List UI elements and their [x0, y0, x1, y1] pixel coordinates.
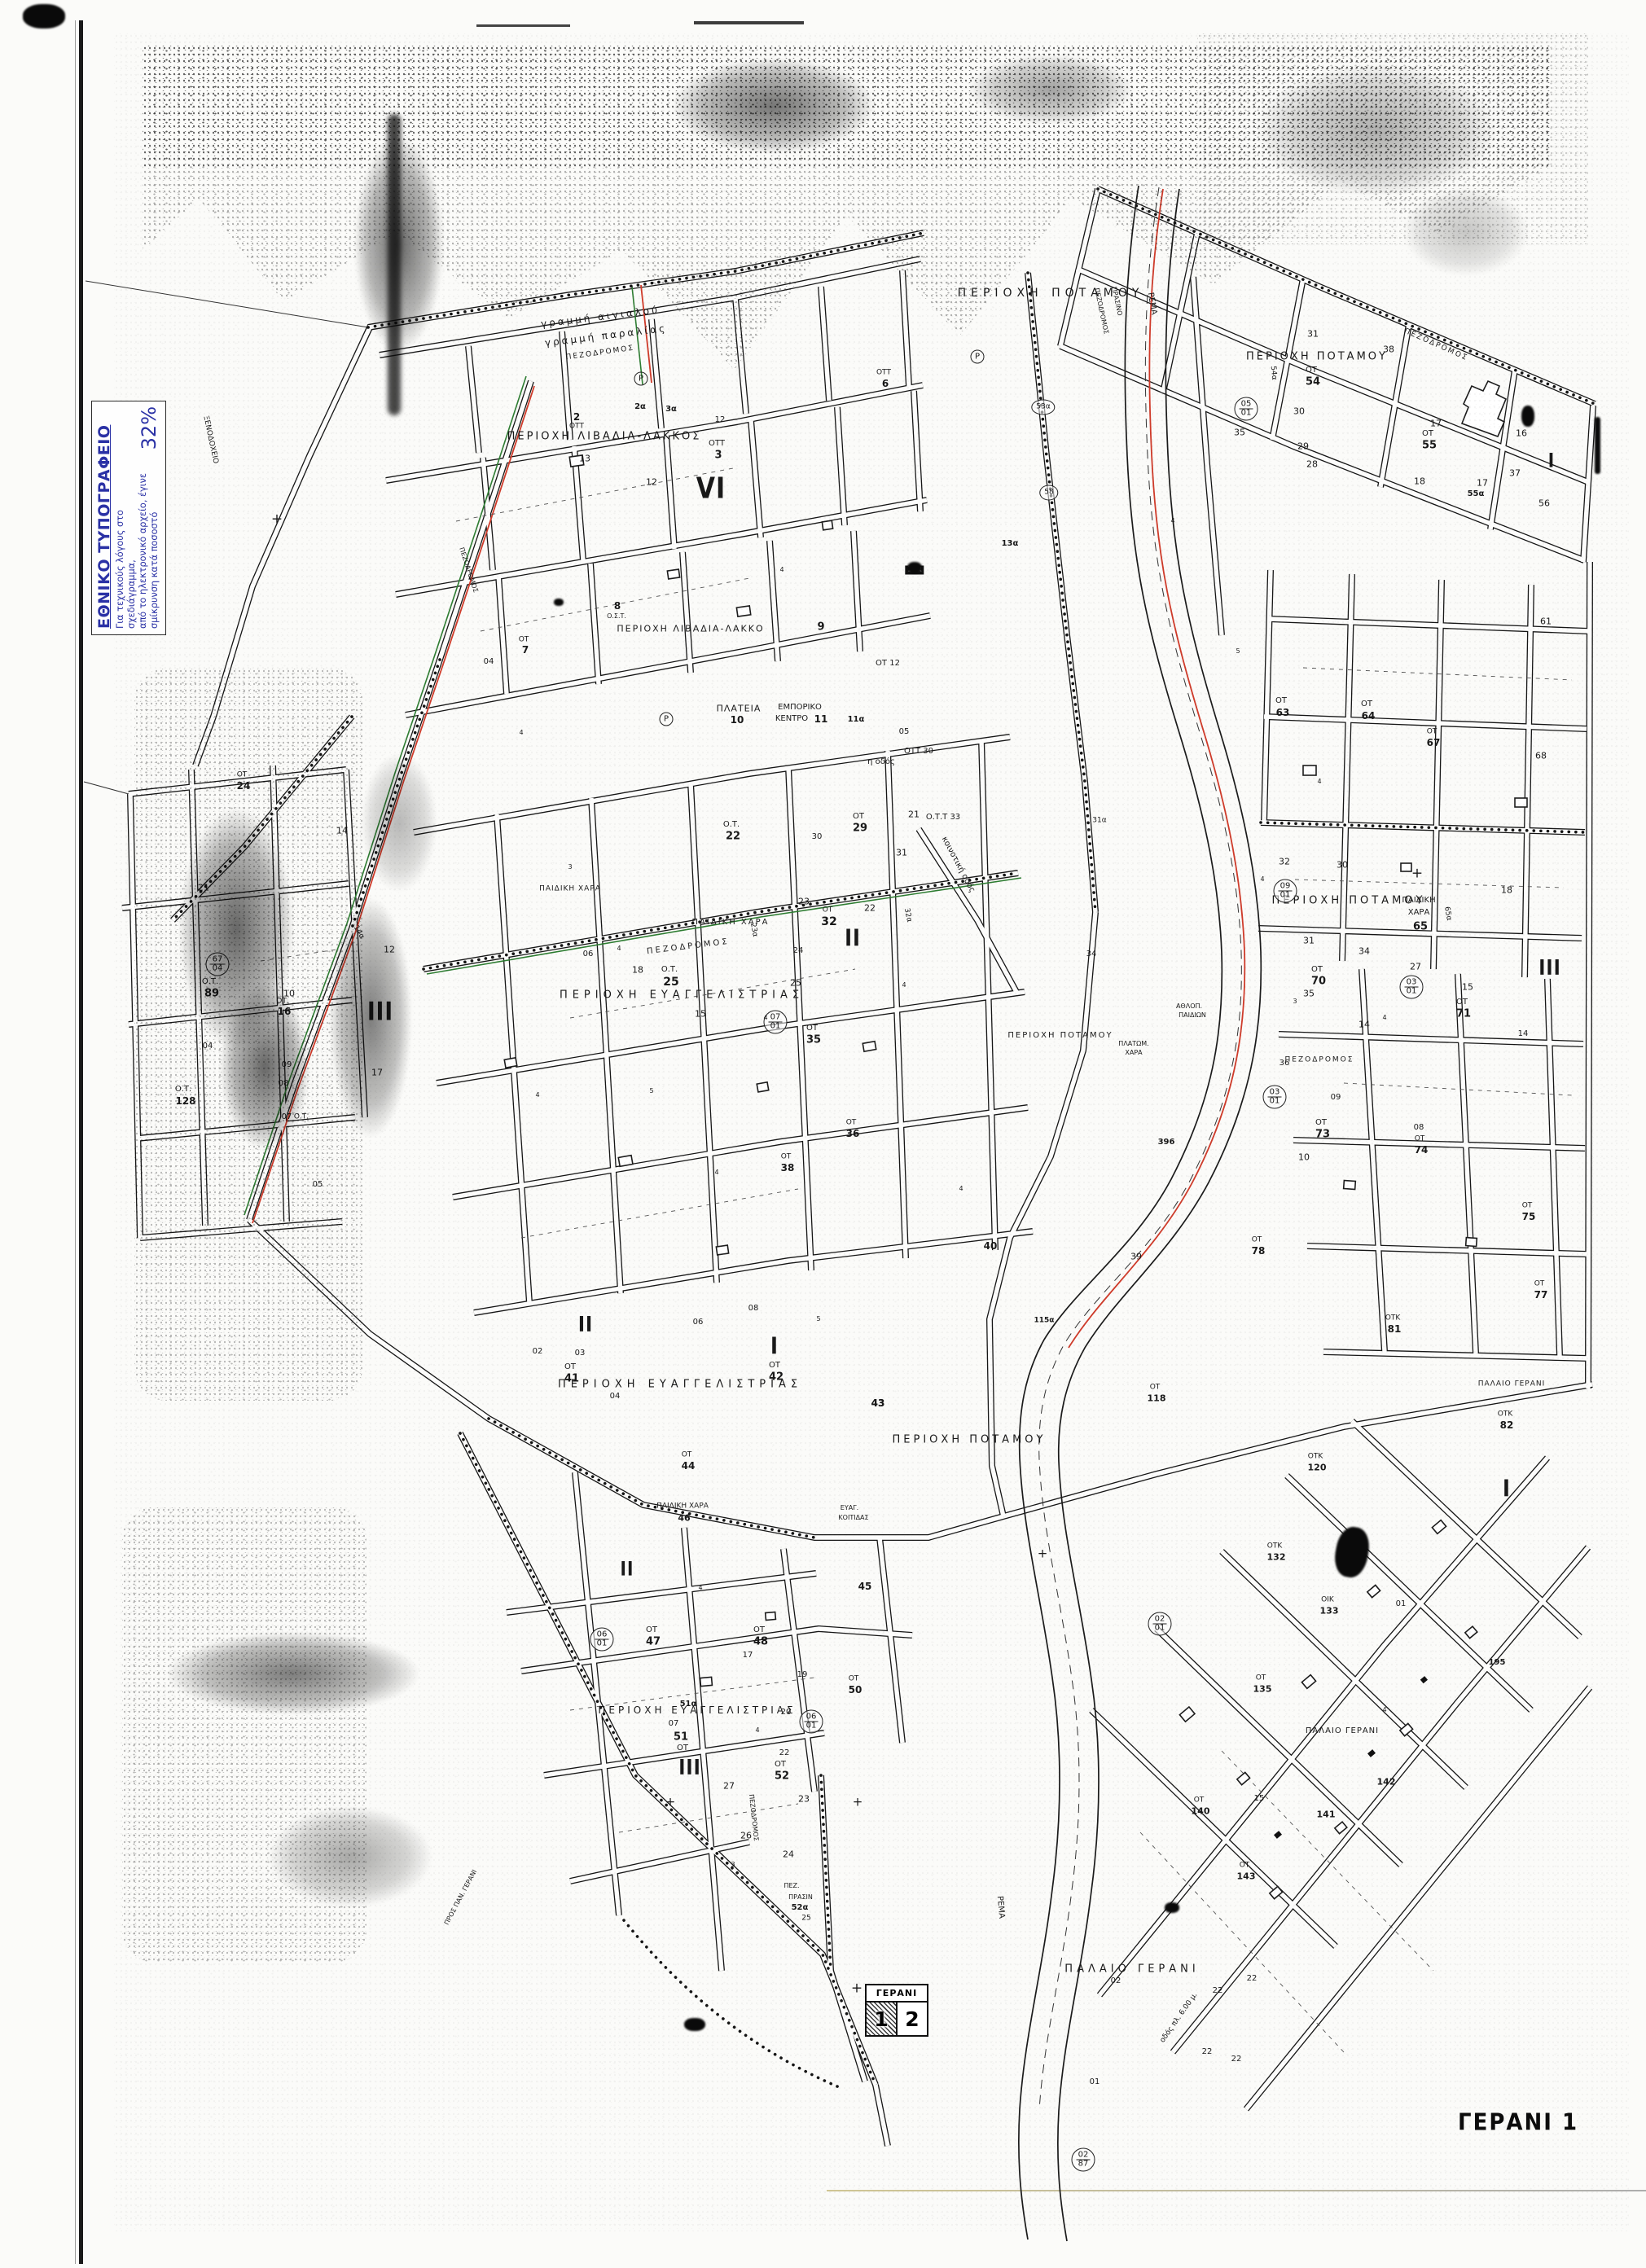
map-label: ΠΕΡΙΟΧΗ ΛΙΒΑΔΙΑ-ΛΑΚΚΟ — [617, 625, 764, 634]
stamp-note: Για τεχνικούς λόγους στο σχεδιάγραμμα, α… — [115, 456, 160, 629]
map-label: ΟΤΚ — [1308, 1454, 1323, 1461]
map-label: 18 — [1414, 477, 1425, 486]
map-label: 16 — [1516, 429, 1527, 438]
map-label: ΕΜΠΟΡΙΚΟ — [778, 704, 822, 712]
map-label: 16 — [278, 1007, 292, 1016]
map-label: 24 — [793, 947, 804, 955]
map-label: ΠΡΑΣΙΝ — [788, 1894, 813, 1901]
map-label: Ο.Τ.Τ 33 — [926, 814, 960, 822]
map-label: 4 — [959, 1186, 963, 1192]
map-label: 31 — [896, 849, 907, 858]
map-label: ΠΑΙΔΙΚΗ ΧΑΡΑ — [692, 919, 770, 927]
map-label: + — [1038, 1548, 1048, 1560]
map-label: ΟΤ — [1415, 1136, 1425, 1143]
ink-blob-1 — [907, 562, 922, 573]
map-label: 4 — [755, 1727, 759, 1734]
map-label: ΟΤ 12 — [876, 660, 900, 668]
map-label: ΟΤ — [1427, 729, 1438, 736]
map-label: 46 — [678, 1514, 690, 1523]
map-label: 01 — [1396, 1600, 1407, 1608]
map-label: ΟΤΚ — [1385, 1315, 1400, 1323]
map-label: 04 — [484, 658, 494, 666]
map-label: 13α — [1002, 540, 1019, 548]
map-label: 22 — [779, 1749, 790, 1757]
map-label: 28 — [1306, 460, 1318, 469]
map-label: 08 — [279, 1080, 289, 1088]
stamp-title: ΕΘΝΙΚΟ ΤΥΠΟΓΡΑΦΕΙΟ — [95, 406, 113, 629]
map-label: 29 — [1297, 442, 1309, 451]
map-label: 52α — [792, 1904, 809, 1912]
map-label: 68 — [1535, 752, 1547, 761]
map-label: ΠΑΙΔΙΚΗ — [1402, 897, 1435, 905]
map-label: ΠΛΑΤΩΜ. — [1118, 1041, 1148, 1047]
map-label: 142 — [1377, 1778, 1396, 1787]
map-label: ΠΕΡΙΟΧΗ ΕΥΑΓΓΕΛΙΣΤΡΙΑΣ — [598, 1705, 796, 1715]
map-label: 3α — [665, 406, 677, 414]
map-label: ΠΕΖΟΔΡΟΜΟΣ — [1402, 328, 1468, 363]
map-label: 55 — [1422, 441, 1437, 451]
map-label: ΟΤ — [775, 1761, 786, 1769]
survey-circle-label: 0901 — [1274, 880, 1297, 903]
map-label: Ο.Τ. — [661, 966, 678, 974]
map-label: 15 — [695, 1010, 706, 1019]
map-label: Ο.Τ. — [202, 978, 218, 986]
zone-roman-numeral: ΙΙ — [845, 927, 861, 950]
map-label: ΟΤΤ — [876, 370, 891, 377]
map-label: 34 — [1358, 947, 1370, 956]
map-labels-layer: ΠΕΡΙΟΧΗ ΠΟΤΑΜΟΥΠΕΡΙΟΧΗ ΠΟΤΑΜΟΥΠΕΡΙΟΧΗ ΠΟ… — [0, 0, 1646, 2268]
map-label: οδός πλ. 6.00 μ. — [1159, 1992, 1199, 2045]
parking-marker: Ρ — [660, 713, 674, 726]
map-label: 17 — [1430, 419, 1442, 428]
map-label: 06 — [693, 1318, 704, 1327]
map-label: 55α — [1468, 490, 1485, 498]
legend-sheet-1-number: 1 — [874, 2007, 888, 2031]
zone-roman-numeral: Ι — [1548, 450, 1555, 470]
map-label: ΟΤ. — [276, 998, 288, 1006]
sheet-index-legend: ΓΕΡΑΝΙ 1 2 — [865, 1984, 928, 2037]
map-label: 23 — [798, 897, 810, 906]
map-label: 37 — [1509, 469, 1521, 478]
zone-roman-numeral: ΙΙΙ — [678, 1758, 701, 1779]
map-label: ΠΑΙΔΙΚΗ ΧΑΡΑ — [656, 1503, 709, 1511]
map-label: 81 — [1388, 1324, 1402, 1334]
map-label: ΟΤΚ — [1267, 1543, 1282, 1551]
map-label: ΟΤΤ — [709, 440, 725, 448]
map-label: ΟΙΚ — [1321, 1597, 1334, 1604]
map-label: 32α — [902, 908, 912, 923]
map-label: + — [665, 1796, 676, 1809]
map-label: 12 — [384, 945, 395, 954]
map-label: 4 — [714, 1169, 718, 1176]
map-label: 18 — [1501, 886, 1512, 895]
map-label: 120 — [1308, 1463, 1327, 1472]
map-label: ΞΕΝΟΔΟΧΕΙΟ — [201, 415, 218, 465]
map-label: 15 — [1462, 983, 1473, 992]
map-label: ΟΤ — [1522, 1203, 1533, 1210]
map-label: ΟΤ — [753, 1626, 765, 1634]
map-label: ΟΤ — [846, 1120, 857, 1127]
legend-title: ΓΕΡΑΝΙ — [867, 1985, 927, 2003]
map-label: 22 — [1202, 2048, 1213, 2056]
map-label: 7 — [522, 645, 529, 655]
map-label: ΠΕΖΟΔΡΟΜΟΣ — [565, 345, 634, 362]
map-label: 4 — [1382, 1015, 1386, 1021]
survey-circle-label: 0287 — [1072, 2148, 1095, 2172]
map-label: 03 — [575, 1349, 586, 1358]
map-label: 36 — [846, 1129, 860, 1138]
map-label: 30 — [1293, 407, 1305, 416]
legend-sheet-2: 2 — [898, 2003, 927, 2035]
map-label: ΠΑΛΑΙΟ ΓΕΡΑΝΙ — [1064, 1964, 1199, 1975]
survey-circle-label: 0201 — [1148, 1612, 1172, 1636]
map-label: 40 — [984, 1241, 998, 1251]
map-sheet-title: ΓΕΡΑΝΙ 1 — [1458, 2110, 1578, 2136]
map-label: ΟΤ — [646, 1626, 657, 1634]
map-label: 6 — [882, 379, 889, 388]
map-label: 04 — [610, 1393, 621, 1401]
map-label: 08 — [1414, 1124, 1424, 1132]
map-label: ΟΤ — [1256, 1675, 1266, 1682]
map-label: 5 — [1236, 648, 1240, 655]
map-label: 2α — [634, 403, 646, 411]
zone-roman-numeral: VI — [696, 475, 726, 503]
map-label: 67 — [1427, 738, 1441, 748]
map-label: 71 — [1456, 1009, 1471, 1020]
map-label: ΟΤ — [1194, 1797, 1205, 1805]
map-label: ΟΤ — [1422, 430, 1433, 438]
map-label: 48 — [753, 1637, 768, 1647]
stamp-note-line-1: Για τεχνικούς λόγους στο σχεδιάγραμμα, — [115, 456, 138, 629]
map-label: 24 — [237, 781, 251, 791]
map-label: 30 — [1337, 861, 1348, 870]
map-label: ΧΑΡΑ — [1125, 1050, 1142, 1056]
map-label: ΡΕΜΑ — [1146, 292, 1158, 315]
map-label: 89 — [204, 989, 219, 999]
map-label: ΠΕΖ. — [783, 1883, 799, 1889]
map-label: ΠΑΛΑΙΟ ΓΕΡΑΝΙ — [1478, 1381, 1546, 1388]
map-label: ΟΤ — [1456, 998, 1468, 1007]
map-label: 64 — [1362, 711, 1376, 721]
map-label: 56 — [1538, 499, 1550, 508]
map-label: ΠΑΙΔΙΩΝ — [1179, 1012, 1206, 1019]
map-label: Ο.Σ.Τ. — [607, 613, 626, 620]
map-label: 34 — [1086, 950, 1097, 959]
map-label: ΟΤ — [781, 1154, 792, 1161]
map-label: 65 — [1413, 922, 1428, 932]
map-label: 4 — [1317, 779, 1321, 785]
map-label: 21 — [198, 884, 209, 893]
map-label: 118 — [1148, 1394, 1166, 1403]
map-label: ΠΕΡΙΟΧΗ ΕΥΑΓΓΕΛΙΣΤΡΙΑΣ — [560, 990, 804, 1001]
map-label: 09 — [282, 1061, 292, 1069]
map-label: ΚΟΙΤΙΔΑΣ — [838, 1515, 868, 1521]
map-label: 10 — [1298, 1153, 1310, 1162]
map-label: 21 — [908, 810, 920, 819]
map-label: 195 — [1489, 1659, 1506, 1667]
map-label: ΠΑΙΔΙΚΗ ΧΑΡΑ — [539, 886, 601, 893]
map-label: ΠΕΡΙΟΧΗ ΛΙΒΑΔΙΑ-ΛΑΚΚΟΣ — [507, 432, 702, 442]
map-label: Ο.Τ. — [723, 821, 740, 829]
ink-blob-3 — [684, 2018, 705, 2031]
map-label: 35 — [806, 1035, 821, 1046]
map-label: 22 — [1247, 1975, 1258, 1983]
map-label: ΧΑΡΑ — [1408, 909, 1430, 917]
map-label: 8 — [614, 601, 621, 611]
map-label: ΕΥΑΓ. — [841, 1505, 858, 1511]
zone-roman-numeral: Ι — [1503, 1477, 1511, 1500]
map-label: 17 — [743, 1652, 753, 1660]
map-label: ΑΘΛΟΠ. — [1176, 1003, 1202, 1010]
map-label: 17 — [1477, 479, 1488, 488]
map-label: 43 — [871, 1398, 885, 1408]
legend-sheet-2-number: 2 — [905, 2007, 919, 2031]
map-label: ΟΤ — [853, 813, 864, 821]
map-label: 10 — [731, 715, 744, 725]
survey-circle-label: 6704 — [206, 953, 230, 976]
map-label: ΚΕΝΤΡΟ — [775, 715, 808, 723]
map-label: 05 — [313, 1181, 323, 1189]
map-label: 65α — [1442, 906, 1452, 922]
map-label: ΠΕΡΙΟΧΗ ΠΟΤΑΜΟΥ — [893, 1435, 1047, 1445]
map-label: ΟΤ — [677, 1744, 688, 1753]
survey-circle-label: 0301 — [1263, 1086, 1287, 1109]
map-label: 51 — [674, 1732, 688, 1743]
map-label: ΟΤΤ 30 — [904, 748, 933, 756]
survey-circle-label: 58 — [1039, 485, 1058, 501]
parking-marker: Ρ — [971, 350, 985, 364]
map-label: Ο.Τ. — [175, 1086, 191, 1094]
map-label: 4 — [1170, 518, 1174, 524]
map-label: ΟΤ — [1534, 1281, 1545, 1288]
map-label: 47 — [646, 1637, 661, 1647]
map-label: 5 — [649, 1088, 653, 1095]
zone-roman-numeral: ΙΙΙ — [367, 1000, 393, 1025]
map-label: ΟΤ — [1311, 966, 1323, 974]
map-label: ΠΕΡΙΟΧΗ ΠΟΤΑΜΟΥ — [1007, 1032, 1113, 1040]
map-label: 02 — [533, 1348, 543, 1356]
map-label: 25 — [801, 1915, 810, 1923]
map-label: 4 — [1382, 1707, 1386, 1713]
map-label: ΟΤ — [1252, 1237, 1262, 1244]
map-label: 23 — [798, 1795, 810, 1804]
map-label: ΠΑΛΑΙΟ ΓΕΡΑΝΙ — [1306, 1727, 1379, 1735]
map-label: 396 — [1158, 1138, 1175, 1147]
map-label: 14α — [352, 924, 365, 941]
map-label: 54 — [1306, 377, 1320, 388]
map-label: + — [1411, 867, 1423, 881]
map-label: ΟΤΤ — [569, 423, 584, 431]
map-label: 44 — [682, 1461, 696, 1471]
map-label: 22 — [726, 831, 740, 842]
map-label: 4 — [535, 1092, 539, 1099]
map-label: 12 — [646, 478, 657, 487]
map-label: 77 — [1534, 1290, 1548, 1300]
map-label: 70 — [1311, 976, 1326, 987]
map-label: 35 — [1234, 428, 1245, 437]
map-label: 42 — [769, 1372, 783, 1383]
map-label: 9 — [817, 622, 824, 633]
reduction-percent: 32% — [138, 406, 160, 450]
printing-office-stamp: ΕΘΝΙΚΟ ΤΥΠΟΓΡΑΦΕΙΟ Για τεχνικούς λόγους … — [91, 401, 166, 635]
ink-blob-6 — [554, 599, 564, 606]
map-label: ΟΤΚ — [1498, 1411, 1512, 1419]
map-label: 133 — [1320, 1607, 1339, 1616]
map-label: 24 — [783, 1850, 794, 1859]
map-label: 63 — [1276, 708, 1290, 717]
map-label: 29 — [853, 823, 867, 834]
map-label: η οδός — [867, 758, 895, 766]
map-label: 31 — [1303, 937, 1315, 945]
ink-blob-right-edge — [1595, 417, 1600, 474]
map-label: ΟΤ — [1150, 1384, 1161, 1392]
map-label: 36 — [1279, 1059, 1290, 1068]
map-label: 5 — [816, 1316, 820, 1323]
zone-roman-numeral: ΙΙ — [578, 1315, 593, 1336]
map-label: 82 — [1500, 1420, 1514, 1430]
map-label: ΟΤ — [564, 1363, 576, 1371]
map-label: 22 — [1213, 1987, 1223, 1995]
map-label: + — [853, 1796, 863, 1809]
map-label: ΟΤ — [769, 1362, 780, 1370]
survey-circle-label: 0601 — [590, 1628, 614, 1652]
map-label: 4 — [519, 730, 523, 736]
map-label: 39 — [1130, 1252, 1142, 1261]
stamp-note-line-3: σμίκρυνση κατά ποσοστό — [149, 456, 160, 629]
map-label: 31α — [1092, 818, 1106, 825]
map-label: 3 — [568, 864, 572, 871]
map-label: 4 — [617, 945, 621, 952]
map-label: 38 — [781, 1163, 795, 1173]
survey-circle-label: 53α — [1031, 400, 1055, 415]
ink-blob-4 — [1165, 1902, 1179, 1913]
survey-circle-label: 0301 — [1400, 976, 1424, 999]
map-label: 31 — [1307, 330, 1319, 339]
map-label: ΟΤ — [1315, 1119, 1327, 1127]
map-label: 14 — [336, 827, 348, 836]
map-label: 3 — [1293, 998, 1297, 1005]
map-label: 4 — [902, 982, 906, 989]
map-label: 26 — [740, 1832, 752, 1840]
map-label: 132 — [1267, 1553, 1286, 1562]
map-label: ΟΤ — [682, 1452, 692, 1459]
map-label: 50 — [849, 1685, 863, 1695]
map-label: 78 — [1252, 1246, 1266, 1256]
map-label: 22 — [1231, 2055, 1242, 2064]
map-label: ΟΤ — [237, 772, 248, 779]
map-label: ΟΤ — [1275, 697, 1287, 705]
map-label: + — [271, 513, 283, 527]
survey-circle-label: 0601 — [800, 1710, 823, 1734]
map-label: 27 — [723, 1782, 735, 1791]
map-label: 3 — [731, 1862, 735, 1868]
map-label: 02 — [1111, 1977, 1121, 1985]
map-label: 135 — [1253, 1685, 1272, 1694]
map-label: 07 — [669, 1720, 679, 1728]
map-label: ΠΕΖΟΔΡΟΜΟΣ — [1285, 1057, 1354, 1064]
map-label: ΟΤ — [519, 637, 529, 644]
survey-circle-label: 0501 — [1235, 397, 1258, 421]
map-label: 52 — [775, 1771, 789, 1782]
map-label: 14 — [1518, 1030, 1529, 1038]
map-label: κοινοτική οδός — [940, 836, 977, 894]
map-label: 143 — [1237, 1872, 1256, 1881]
map-label: Ο.Τ. — [294, 1114, 309, 1121]
legend-sheet-1-current: 1 — [867, 2003, 898, 2035]
map-label: ΠΛΑΤΕΙΑ — [717, 704, 762, 713]
map-label: 38 — [1383, 345, 1394, 354]
map-label: ΟΤ — [1361, 700, 1372, 708]
map-label: 18 — [632, 966, 643, 975]
zone-roman-numeral: ΙΙΙ — [1538, 959, 1561, 980]
map-label: + — [851, 1982, 863, 1996]
map-label: 41 — [564, 1374, 579, 1384]
map-label: 4 — [1260, 876, 1264, 883]
map-label: 115α — [1034, 1318, 1055, 1325]
map-label: 74 — [1415, 1145, 1429, 1155]
map-label: ΠΕΖΟΔΡΟΜΟΣ — [458, 546, 478, 593]
map-label: 51α — [680, 1700, 697, 1709]
map-label: 54α — [1269, 366, 1277, 380]
map-label: 25 — [790, 979, 801, 988]
map-label: 22 — [864, 904, 876, 913]
ink-blob-5 — [1521, 406, 1534, 427]
map-label: 45 — [858, 1581, 872, 1591]
map-label: 23α — [748, 923, 758, 938]
map-label: 4 — [763, 1015, 767, 1021]
map-label: 75 — [1522, 1212, 1536, 1222]
map-label: 128 — [175, 1096, 195, 1106]
map-label: 2 — [573, 412, 580, 422]
map-label: 06 — [583, 950, 594, 959]
map-label: 14 — [1358, 1020, 1370, 1029]
map-label: 61 — [1540, 617, 1552, 626]
stamp-note-line-2: από το ηλεκτρονικό αρχείο, έγινε — [138, 456, 149, 629]
map-label: ΠΕΡΙΟΧΗ ΕΥΑΓΓΕΛΙΣΤΡΙΑΣ — [558, 1380, 802, 1390]
map-label: 11 — [814, 714, 828, 724]
map-label: 30 — [812, 833, 823, 841]
map-label: ΠΕΖΟΔΡΟΜΟΣ — [647, 938, 731, 956]
map-label: 27 — [1410, 963, 1421, 972]
map-label: 04 — [203, 1042, 213, 1051]
scanned-map-page: ΠΕΡΙΟΧΗ ΠΟΤΑΜΟΥΠΕΡΙΟΧΗ ΠΟΤΑΜΟΥΠΕΡΙΟΧΗ ΠΟ… — [0, 0, 1646, 2268]
map-label: 17 — [371, 1068, 383, 1077]
zone-roman-numeral: Ι — [770, 1335, 779, 1358]
map-label: ΡΕΜΑ — [995, 1896, 1005, 1919]
map-label: ΠΕΡΙΟΧΗ ΠΟΤΑΜΟΥ — [1246, 352, 1388, 362]
map-label: ΟΤ — [823, 907, 833, 915]
map-label: 12 — [715, 416, 726, 424]
map-label: 15 — [1254, 1795, 1265, 1803]
map-label: 20 — [781, 1709, 792, 1717]
map-label: 19 — [797, 1671, 808, 1679]
map-label: 13 — [579, 454, 590, 463]
map-label: 01 — [1090, 2078, 1100, 2086]
map-label: 73 — [1315, 1130, 1330, 1140]
map-label: ΟΤ — [1306, 366, 1317, 375]
map-label: 35 — [1303, 989, 1315, 998]
map-label: 11α — [848, 716, 865, 724]
map-label: 05 — [899, 728, 910, 736]
map-label: 32 — [821, 916, 836, 928]
map-label: 4 — [698, 1585, 702, 1591]
map-label: 08 — [748, 1305, 759, 1313]
map-label: 32 — [1279, 858, 1290, 866]
map-label: ΟΤ — [849, 1676, 859, 1683]
map-label: 25 — [663, 976, 678, 988]
map-label: 09 — [1331, 1094, 1341, 1102]
map-label: ΟΤ — [1240, 1862, 1250, 1870]
